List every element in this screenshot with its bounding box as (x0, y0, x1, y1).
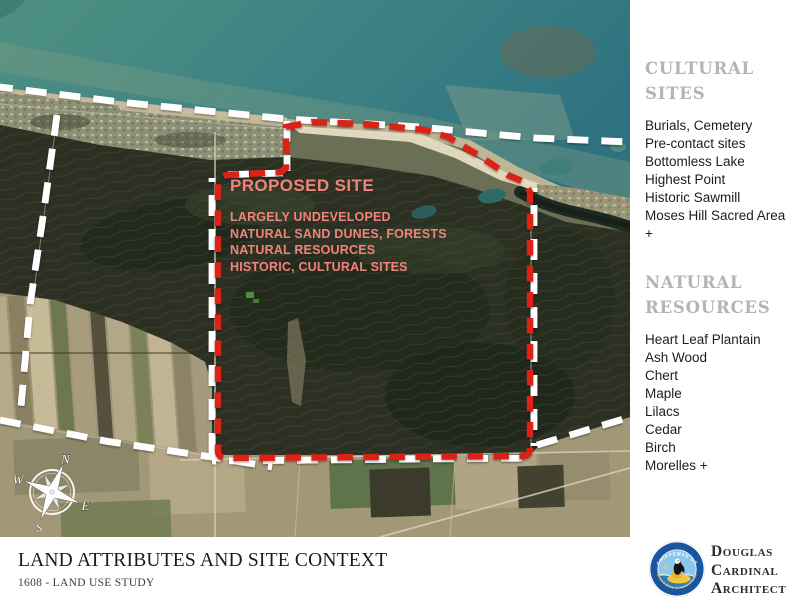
compass-n-label: N (60, 452, 71, 467)
natural-resource-item: Heart Leaf Plantain (645, 331, 792, 349)
project-subtitle: 1608 - LAND USE STUDY (18, 577, 155, 589)
natural-resource-item: Morelles + (645, 457, 792, 475)
architect-name-line: Cardinal (711, 562, 800, 581)
compass-e-label: E (81, 498, 90, 513)
natural-resource-item: Cedar (645, 421, 792, 439)
title-bar: LAND ATTRIBUTES AND SITE CONTEXT 1608 - … (0, 537, 630, 610)
satellite-map-image: N E S W (0, 0, 630, 537)
cultural-site-item: Historic Sawmill (645, 189, 792, 207)
architect-name-line: Architect (711, 580, 800, 599)
cultural-site-item: Bottomless Lake (645, 153, 792, 171)
natural-resource-item: Lilacs (645, 403, 792, 421)
architect-name: Douglas Cardinal Architect (711, 543, 800, 599)
compass-s-label: S (36, 520, 43, 535)
heading-line: RESOURCES (645, 295, 792, 320)
natural-resources-section: NATURAL RESOURCES Heart Leaf PlantainAsh… (645, 270, 792, 475)
natural-resource-item: Ash Wood (645, 349, 792, 367)
cultural-sites-list: Burials, CemeteryPre-contact sitesBottom… (645, 117, 792, 243)
site-map: N E S W PROPOSED SITE LARGELY UNDEVELOPE… (0, 0, 630, 537)
cultural-site-item: Burials, Cemetery (645, 117, 792, 135)
compass-w-label: W (13, 472, 25, 487)
cultural-sites-section: CULTURAL SITES Burials, CemeteryPre-cont… (645, 56, 792, 243)
slide-title: LAND ATTRIBUTES AND SITE CONTEXT (18, 550, 387, 572)
natural-resources-heading: NATURAL RESOURCES (645, 270, 792, 320)
cultural-site-item: Moses Hill Sacred Area + (645, 207, 792, 243)
natural-resource-item: Maple (645, 385, 792, 403)
heading-line: NATURAL (645, 270, 792, 295)
cultural-site-item: Highest Point (645, 171, 792, 189)
natural-resource-item: Chert (645, 367, 792, 385)
architect-name-line: Douglas (711, 543, 800, 562)
legend-sidebar: CULTURAL SITES Burials, CemeteryPre-cont… (630, 0, 800, 537)
natural-resources-list: Heart Leaf PlantainAsh WoodChertMapleLil… (645, 331, 792, 475)
natural-resource-item: Birch (645, 439, 792, 457)
cultural-sites-heading: CULTURAL SITES (645, 56, 792, 106)
cultural-site-item: Pre-contact sites (645, 135, 792, 153)
heading-line: SITES (645, 81, 792, 106)
heading-line: CULTURAL (645, 56, 792, 81)
first-nation-seal-logo: CHIPPEWAS OF Kettle & Stony Point First … (648, 540, 706, 598)
